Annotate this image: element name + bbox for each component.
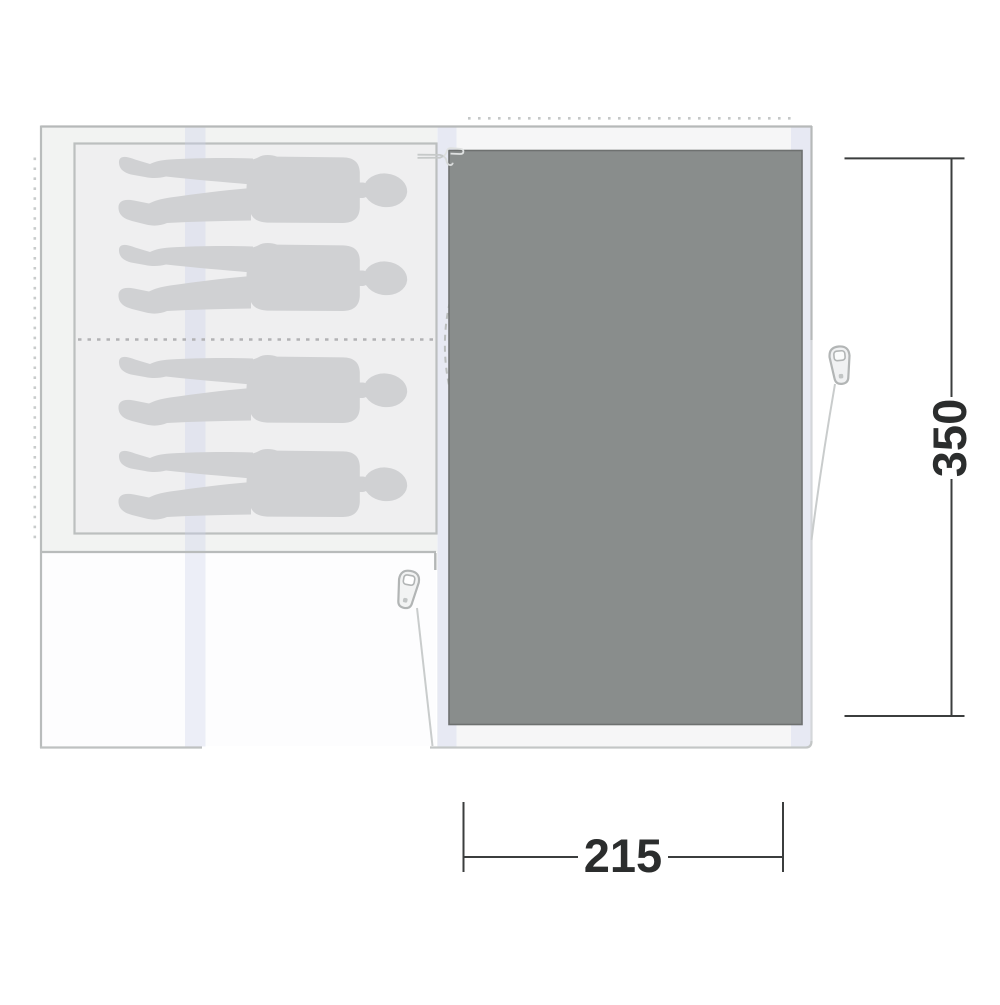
svg-text:215: 215 (584, 829, 662, 882)
svg-text:350: 350 (923, 399, 976, 477)
